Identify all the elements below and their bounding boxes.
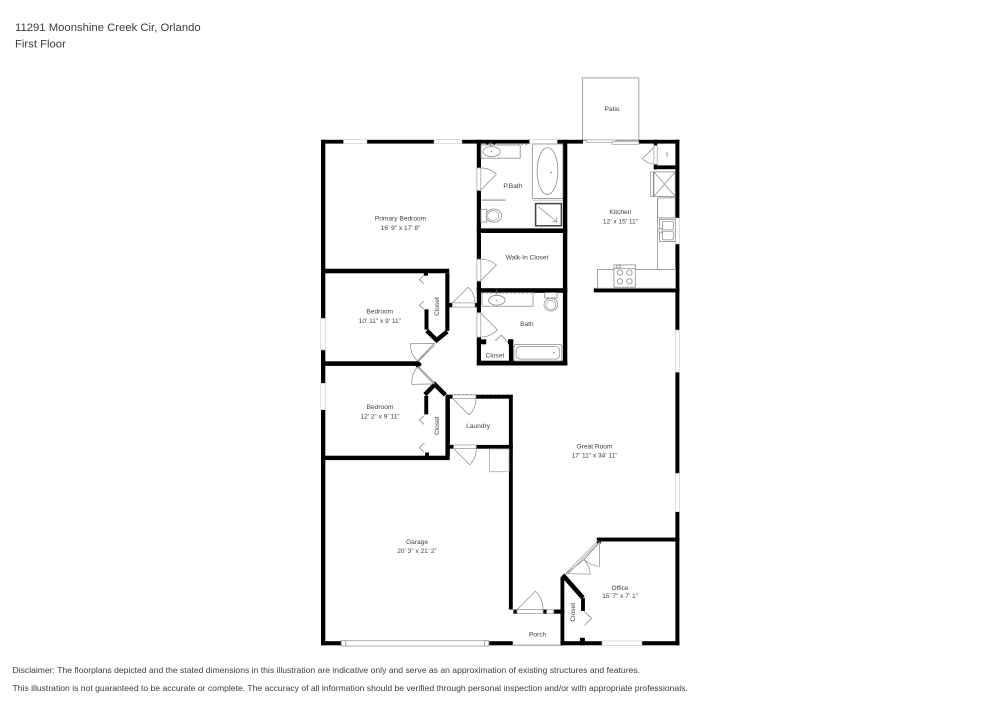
svg-text:12’ 2” x 9’ 11”: 12’ 2” x 9’ 11” xyxy=(361,413,400,420)
svg-text:Bath: Bath xyxy=(520,321,534,328)
svg-text:Closet: Closet xyxy=(434,297,441,316)
svg-text:Disclaimer: The floorplans dep: Disclaimer: The floorplans depicted and … xyxy=(13,665,641,675)
svg-text:Closet: Closet xyxy=(486,353,505,360)
svg-text:Kitchen: Kitchen xyxy=(609,209,631,216)
svg-text:20’ 3” x 21’ 2”: 20’ 3” x 21’ 2” xyxy=(397,548,436,555)
svg-text:Laundry: Laundry xyxy=(466,423,491,430)
svg-text:12’ x 15’ 11”: 12’ x 15’ 11” xyxy=(603,218,638,225)
svg-text:Closet: Closet xyxy=(570,603,577,622)
svg-text:First Floor: First Floor xyxy=(15,39,66,51)
svg-text:Primary Bedroom: Primary Bedroom xyxy=(375,216,427,223)
svg-text:Porch: Porch xyxy=(529,632,547,639)
svg-text:17’ 11” x 34’ 11”: 17’ 11” x 34’ 11” xyxy=(572,452,618,459)
svg-text:Garage: Garage xyxy=(406,539,428,546)
svg-text:P.Bath: P.Bath xyxy=(503,183,522,190)
svg-text:Closet: Closet xyxy=(434,416,441,435)
svg-text:Patio: Patio xyxy=(604,106,619,113)
svg-text:This illustration is not guara: This illustration is not guaranteed to b… xyxy=(13,683,688,693)
svg-text:10’ 11” x 9’ 11”: 10’ 11” x 9’ 11” xyxy=(359,318,401,325)
svg-text:16’ 9” x 17’ 8”: 16’ 9” x 17’ 8” xyxy=(381,225,420,232)
svg-text:15’ 7” x 7’ 1”: 15’ 7” x 7’ 1” xyxy=(602,593,638,600)
svg-text:11291 Moonshine Creek Cir, Orl: 11291 Moonshine Creek Cir, Orlando xyxy=(15,22,201,34)
svg-text:Bedroom: Bedroom xyxy=(367,404,394,411)
svg-text:Bedroom: Bedroom xyxy=(366,309,393,316)
svg-text:Office: Office xyxy=(611,585,628,592)
svg-text:Walk-In Closet: Walk-In Closet xyxy=(506,254,549,261)
svg-text:Great Room: Great Room xyxy=(577,444,613,451)
